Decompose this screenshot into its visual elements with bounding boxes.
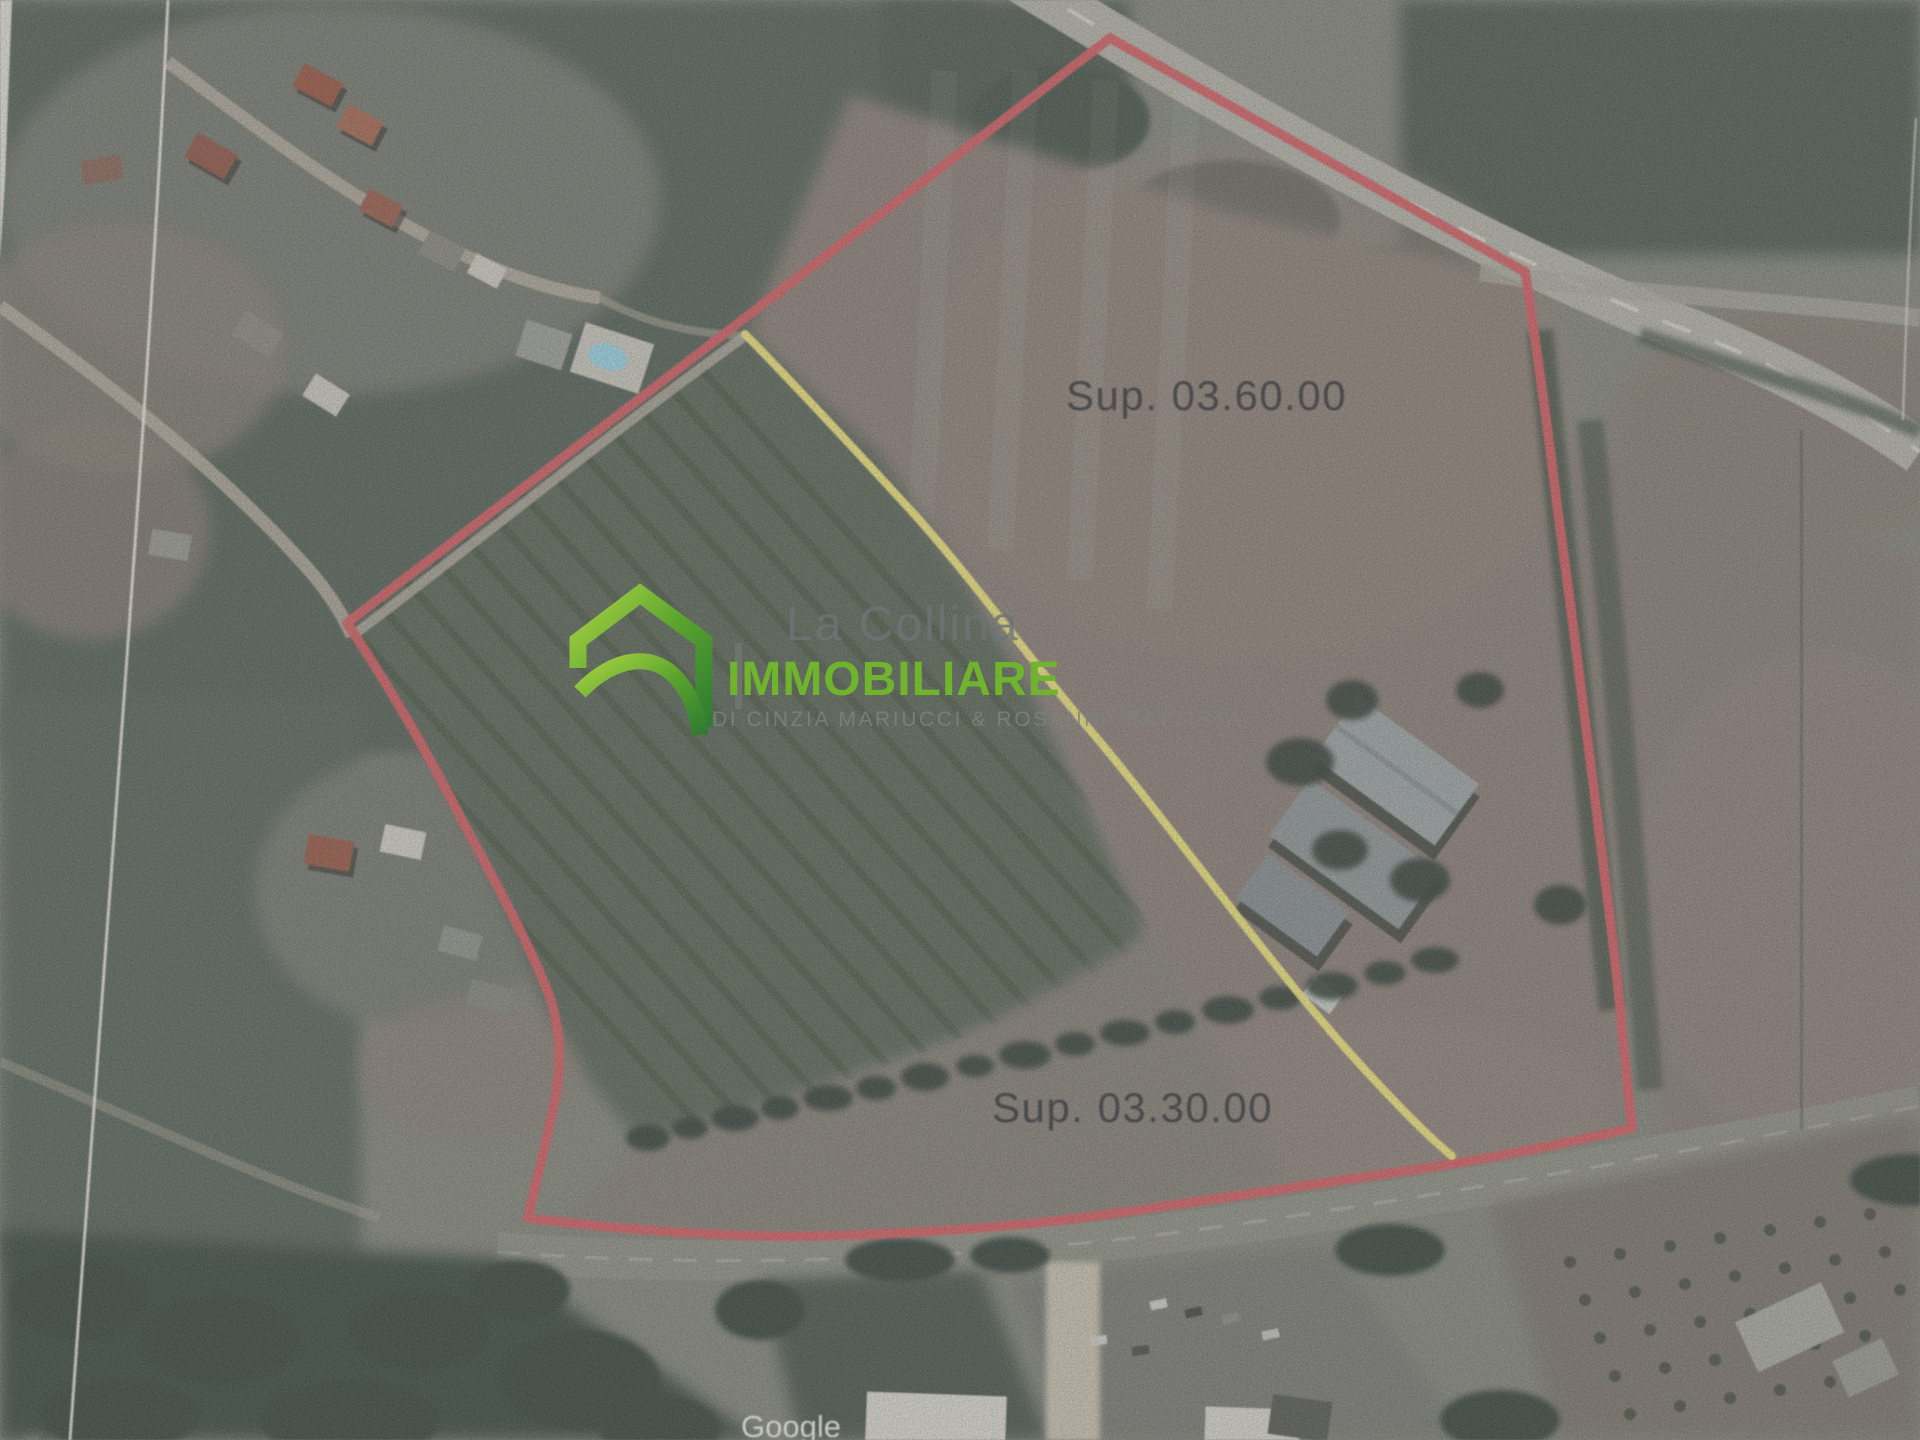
- logo-title: La Collina: [786, 598, 1019, 651]
- logo-tagline: DI CINZIA MARIUCCI & ROSANNA BATTISTA: [712, 708, 1244, 731]
- scanned-aerial-photo: Sup. 03.60.00 Sup. 03.30.00 Google: [0, 0, 1920, 1440]
- overlay-layer: La Collina IMMOBILIARE DI CINZIA MARIUCC…: [0, 0, 1920, 1440]
- logo-subtitle: IMMOBILIARE: [727, 653, 1061, 706]
